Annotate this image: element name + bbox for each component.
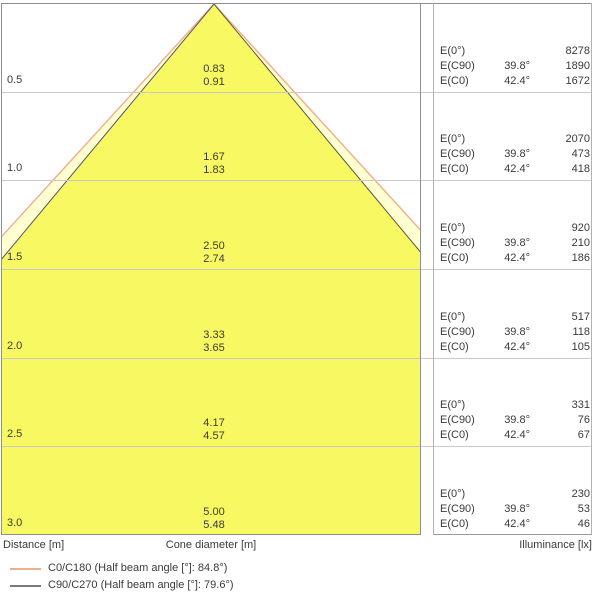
ec0-angle: 42.4° bbox=[488, 74, 530, 89]
cone-diameter-c90-value: 4.17 bbox=[14, 417, 414, 430]
illuminance-block-1-5m: E(0°) 920 E(C90) 39.8° 210 E(C0) 42.4° 1… bbox=[433, 221, 592, 266]
ec90-value: 210 bbox=[530, 236, 590, 251]
illuminance-block-2-5m: E(0°) 331 E(C90) 39.8° 76 E(C0) 42.4° 67 bbox=[433, 398, 592, 443]
ec90-label: E(C90) bbox=[440, 147, 488, 162]
cone-diameter-c90-value: 1.67 bbox=[14, 151, 414, 164]
ec90-row: E(C90) 39.8° 1890 bbox=[433, 59, 592, 74]
ec0-label: E(C0) bbox=[440, 74, 488, 89]
cone-diameter-c90-value: 3.33 bbox=[14, 329, 414, 342]
legend-label-c90-c270: C90/C270 (Half beam angle [°]: 79.6°) bbox=[48, 578, 234, 593]
ec90-label: E(C90) bbox=[440, 325, 488, 340]
ec90-value: 473 bbox=[530, 147, 590, 162]
ec0-value: 418 bbox=[530, 162, 590, 177]
ec90-label: E(C90) bbox=[440, 413, 488, 428]
e0-angle bbox=[488, 310, 530, 325]
e0-label: E(0°) bbox=[440, 310, 488, 325]
e0-value: 230 bbox=[530, 487, 590, 502]
illuminance-block-2-0m: E(0°) 517 E(C90) 39.8° 118 E(C0) 42.4° 1… bbox=[433, 310, 592, 355]
cone-diameter-axis-label: Cone diameter [m] bbox=[1, 538, 421, 552]
ec90-label: E(C90) bbox=[440, 59, 488, 74]
legend-item-c0-c180: C0/C180 (Half beam angle [°]: 84.8°) bbox=[10, 561, 227, 576]
e0-label: E(0°) bbox=[440, 44, 488, 59]
ec0-value: 67 bbox=[530, 428, 590, 443]
cone-diameter-c0-value: 5.48 bbox=[14, 519, 414, 532]
ec90-row: E(C90) 39.8° 473 bbox=[433, 147, 592, 162]
cone-diameter-c0-value: 3.65 bbox=[14, 342, 414, 355]
ec0-row: E(C0) 42.4° 67 bbox=[433, 428, 592, 443]
e0-value: 8278 bbox=[530, 44, 590, 59]
ec90-angle: 39.8° bbox=[488, 413, 530, 428]
ec90-value: 118 bbox=[530, 325, 590, 340]
ec0-row: E(C0) 42.4° 105 bbox=[433, 340, 592, 355]
illuminance-block-0-5m: E(0°) 8278 E(C90) 39.8° 1890 E(C0) 42.4°… bbox=[433, 44, 592, 89]
cone-diameter-values: 0.83 0.91 bbox=[14, 63, 414, 89]
illuminance-axis-label: Illuminance [lx] bbox=[433, 538, 592, 552]
cone-diameter-c90-value: 0.83 bbox=[14, 63, 414, 76]
legend-item-c90-c270: C90/C270 (Half beam angle [°]: 79.6°) bbox=[10, 578, 234, 593]
e0-angle bbox=[488, 132, 530, 147]
ec90-angle: 39.8° bbox=[488, 236, 530, 251]
ec0-value: 105 bbox=[530, 340, 590, 355]
ec0-angle: 42.4° bbox=[488, 251, 530, 266]
e0-value: 920 bbox=[530, 221, 590, 236]
ec0-value: 46 bbox=[530, 517, 590, 532]
cone-diameter-c0-value: 4.57 bbox=[14, 430, 414, 443]
cone-diameter-values: 2.50 2.74 bbox=[14, 240, 414, 266]
e0-row: E(0°) 2070 bbox=[433, 132, 592, 147]
cone-diameter-values: 5.00 5.48 bbox=[14, 506, 414, 532]
ec0-value: 186 bbox=[530, 251, 590, 266]
cone-diameter-c0-value: 2.74 bbox=[14, 253, 414, 266]
ec90-row: E(C90) 39.8° 53 bbox=[433, 502, 592, 517]
e0-angle bbox=[488, 44, 530, 59]
e0-value: 2070 bbox=[530, 132, 590, 147]
cone-diameter-values: 4.17 4.57 bbox=[14, 417, 414, 443]
ec0-row: E(C0) 42.4° 418 bbox=[433, 162, 592, 177]
ec90-angle: 39.8° bbox=[488, 325, 530, 340]
e0-value: 517 bbox=[530, 310, 590, 325]
illuminance-table: E(0°) 8278 E(C90) 39.8° 1890 E(C0) 42.4°… bbox=[433, 3, 592, 535]
ec0-value: 1672 bbox=[530, 74, 590, 89]
c90-c270-line-swatch bbox=[10, 585, 41, 587]
e0-angle bbox=[488, 487, 530, 502]
e0-row: E(0°) 230 bbox=[433, 487, 592, 502]
ec0-label: E(C0) bbox=[440, 251, 488, 266]
cone-diameter-c90-value: 2.50 bbox=[14, 240, 414, 253]
ec0-row: E(C0) 42.4° 1672 bbox=[433, 74, 592, 89]
illuminance-block-3-0m: E(0°) 230 E(C90) 39.8° 53 E(C0) 42.4° 46 bbox=[433, 487, 592, 532]
ec90-label: E(C90) bbox=[440, 502, 488, 517]
e0-label: E(0°) bbox=[440, 132, 488, 147]
e0-row: E(0°) 517 bbox=[433, 310, 592, 325]
c0-c180-line-swatch bbox=[10, 568, 41, 570]
ec90-angle: 39.8° bbox=[488, 59, 530, 74]
ec90-angle: 39.8° bbox=[488, 502, 530, 517]
ec90-row: E(C90) 39.8° 118 bbox=[433, 325, 592, 340]
e0-row: E(0°) 8278 bbox=[433, 44, 592, 59]
e0-label: E(0°) bbox=[440, 221, 488, 236]
e0-value: 331 bbox=[530, 398, 590, 413]
ec90-value: 1890 bbox=[530, 59, 590, 74]
ec90-value: 53 bbox=[530, 502, 590, 517]
ec0-angle: 42.4° bbox=[488, 162, 530, 177]
cone-diameter-c0-value: 1.83 bbox=[14, 164, 414, 177]
cone-diagram-figure: 0.5 1.0 1.5 2.0 2.5 3.0 0.83 0.91 1.67 1… bbox=[0, 0, 600, 600]
ec0-angle: 42.4° bbox=[488, 340, 530, 355]
ec0-angle: 42.4° bbox=[488, 428, 530, 443]
ec90-angle: 39.8° bbox=[488, 147, 530, 162]
cone-diameter-c0-value: 0.91 bbox=[14, 76, 414, 89]
ec0-label: E(C0) bbox=[440, 162, 488, 177]
e0-label: E(0°) bbox=[440, 487, 488, 502]
e0-row: E(0°) 920 bbox=[433, 221, 592, 236]
ec90-label: E(C90) bbox=[440, 236, 488, 251]
ec0-row: E(C0) 42.4° 186 bbox=[433, 251, 592, 266]
cone-diameter-values: 3.33 3.65 bbox=[14, 329, 414, 355]
e0-angle bbox=[488, 221, 530, 236]
ec90-row: E(C90) 39.8° 76 bbox=[433, 413, 592, 428]
e0-angle bbox=[488, 398, 530, 413]
legend-label-c0-c180: C0/C180 (Half beam angle [°]: 84.8°) bbox=[48, 561, 227, 576]
e0-row: E(0°) 331 bbox=[433, 398, 592, 413]
e0-label: E(0°) bbox=[440, 398, 488, 413]
ec90-value: 76 bbox=[530, 413, 590, 428]
cone-diameter-c90-value: 5.00 bbox=[14, 506, 414, 519]
ec0-label: E(C0) bbox=[440, 428, 488, 443]
ec0-row: E(C0) 42.4° 46 bbox=[433, 517, 592, 532]
ec0-label: E(C0) bbox=[440, 517, 488, 532]
ec0-label: E(C0) bbox=[440, 340, 488, 355]
ec0-angle: 42.4° bbox=[488, 517, 530, 532]
cone-diameter-values: 1.67 1.83 bbox=[14, 151, 414, 177]
ec90-row: E(C90) 39.8° 210 bbox=[433, 236, 592, 251]
illuminance-block-1-0m: E(0°) 2070 E(C90) 39.8° 473 E(C0) 42.4° … bbox=[433, 132, 592, 177]
